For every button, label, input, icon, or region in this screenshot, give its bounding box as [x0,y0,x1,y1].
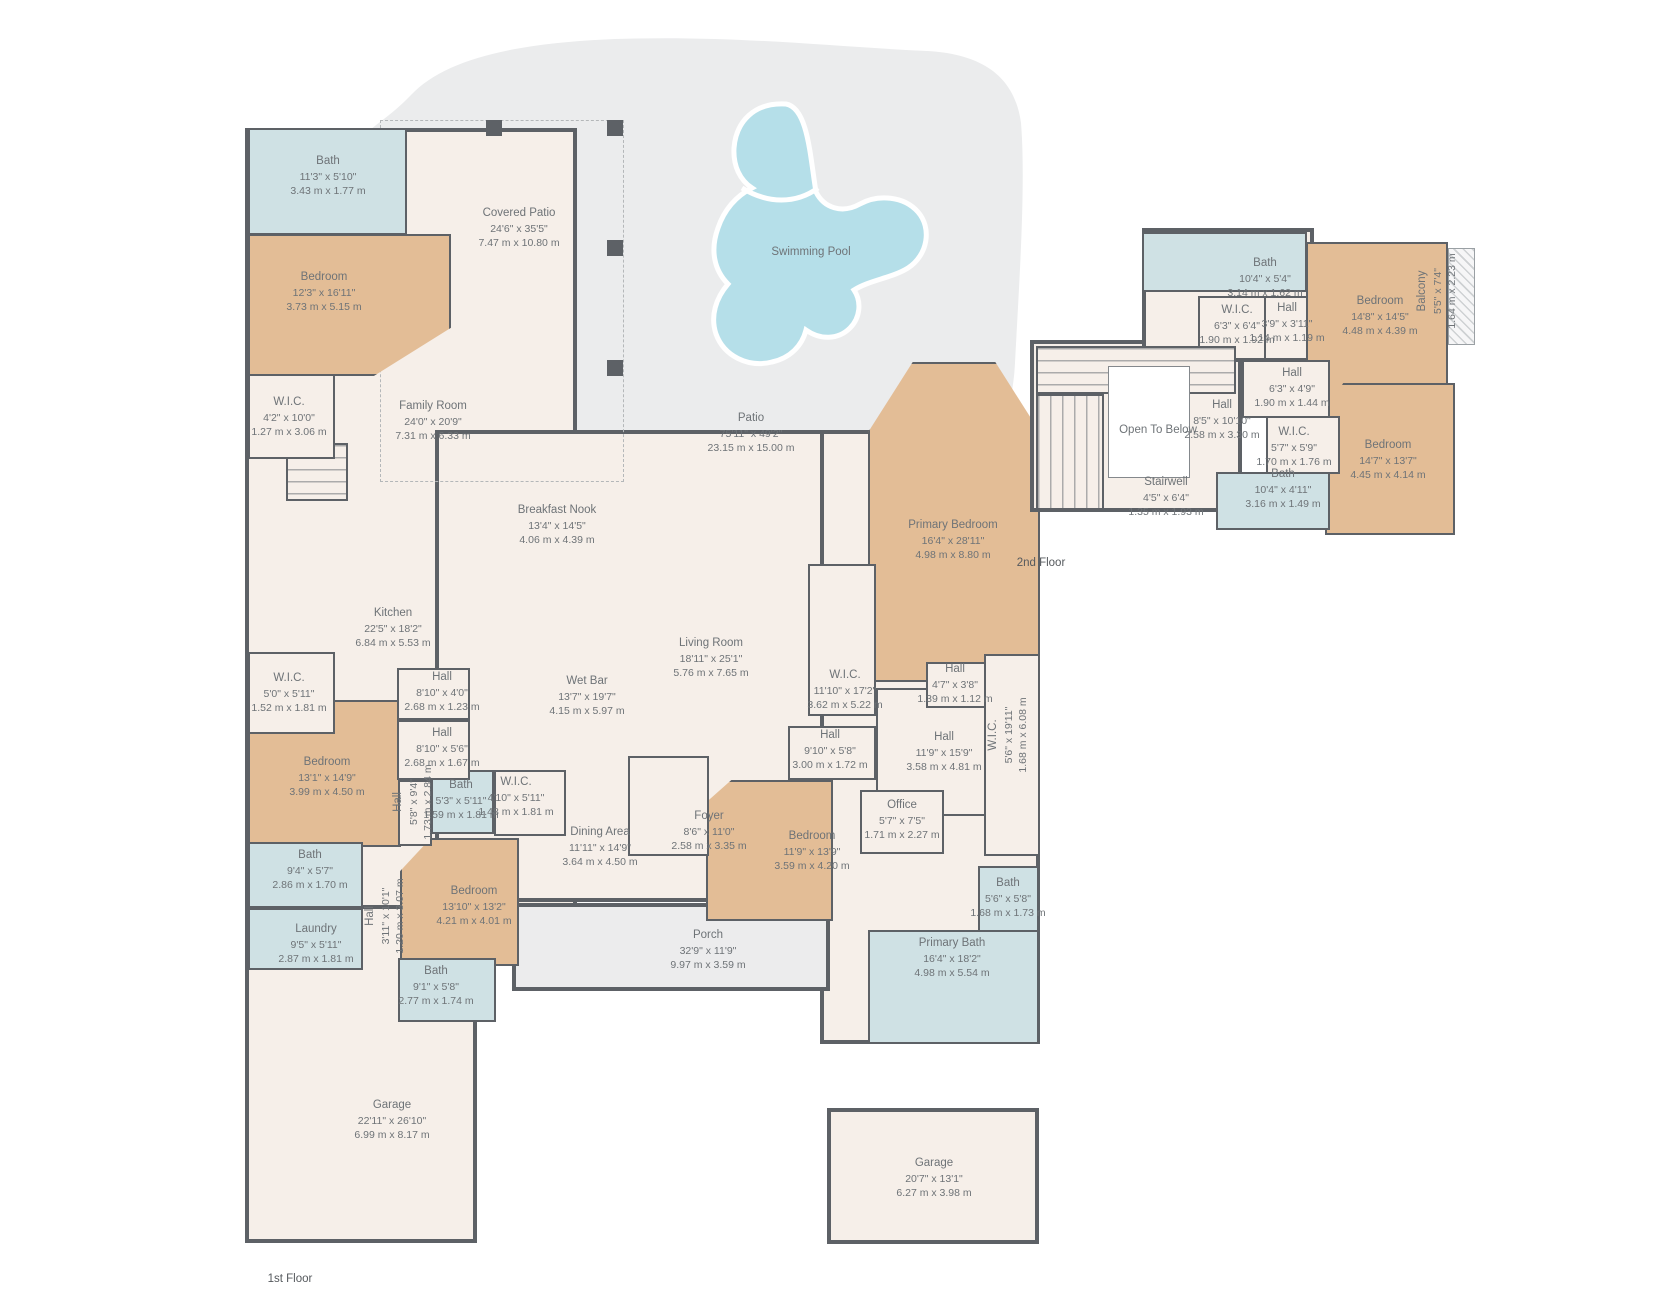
second-floor-caption: 2nd Floor [1017,557,1066,569]
room-shape-open-to-below-void [1108,366,1190,478]
second-floor-plan: Bath10'4" x 5'4"3.14 m x 1.62 mW.I.C.6'3… [0,0,1668,1297]
room-label-hall: Hall6'3" x 4'9"1.90 m x 1.44 m [1254,366,1329,410]
room-shape-stairs [1036,394,1104,510]
floor-plan-canvas: Bath11'3" x 5'10"3.43 m x 1.77 mBedroom1… [0,0,1668,1297]
room-label-bath: Bath10'4" x 4'11"3.16 m x 1.49 m [1245,467,1320,511]
room-label-balcony: Balcony5'5" x 7'4"1.64 m x 2.23 m [1415,253,1459,328]
first-floor-caption: 1st Floor [268,1273,313,1285]
room-label-hall: Hall3'9" x 3'11"1.14 m x 1.19 m [1249,301,1324,345]
room-label-bath: Bath10'4" x 5'4"3.14 m x 1.62 m [1227,256,1302,300]
room-label-bedroom: Bedroom14'8" x 14'5"4.48 m x 4.39 m [1342,294,1417,338]
room-label-stairwell: Stairwell4'5" x 6'4"1.35 m x 1.93 m [1128,475,1203,519]
room-label-bedroom: Bedroom14'7" x 13'7"4.45 m x 4.14 m [1350,438,1425,482]
room-label-open-to-below: Open To Below [1119,423,1197,439]
room-label-w-i-c: W.I.C.5'7" x 5'9"1.70 m x 1.76 m [1256,425,1331,469]
